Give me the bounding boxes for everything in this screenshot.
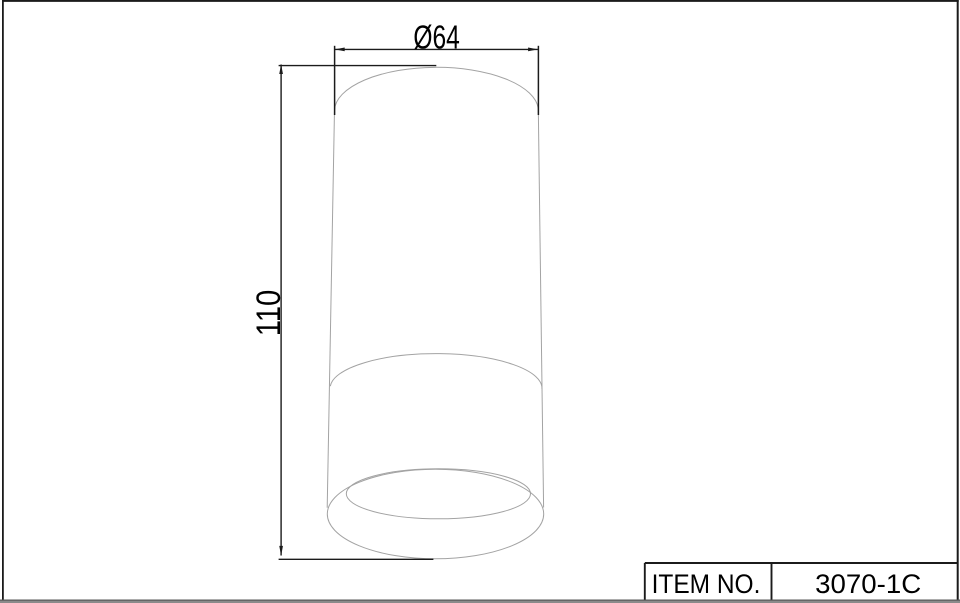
svg-text:ITEM NO.: ITEM NO. [652,568,761,599]
svg-text:Ø64: Ø64 [413,20,459,57]
svg-text:110: 110 [250,290,288,337]
svg-text:3070-1C: 3070-1C [815,568,921,599]
